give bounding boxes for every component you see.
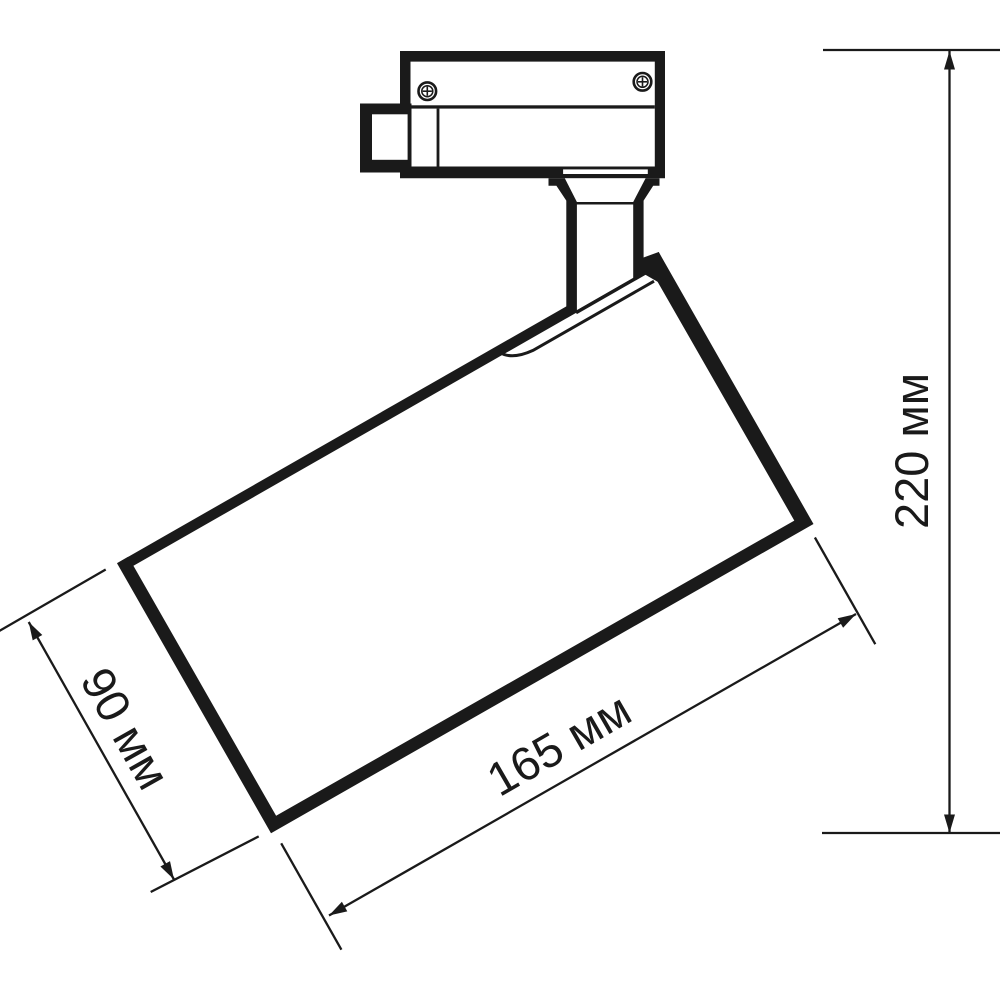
svg-text:220 мм: 220 мм — [885, 373, 938, 529]
